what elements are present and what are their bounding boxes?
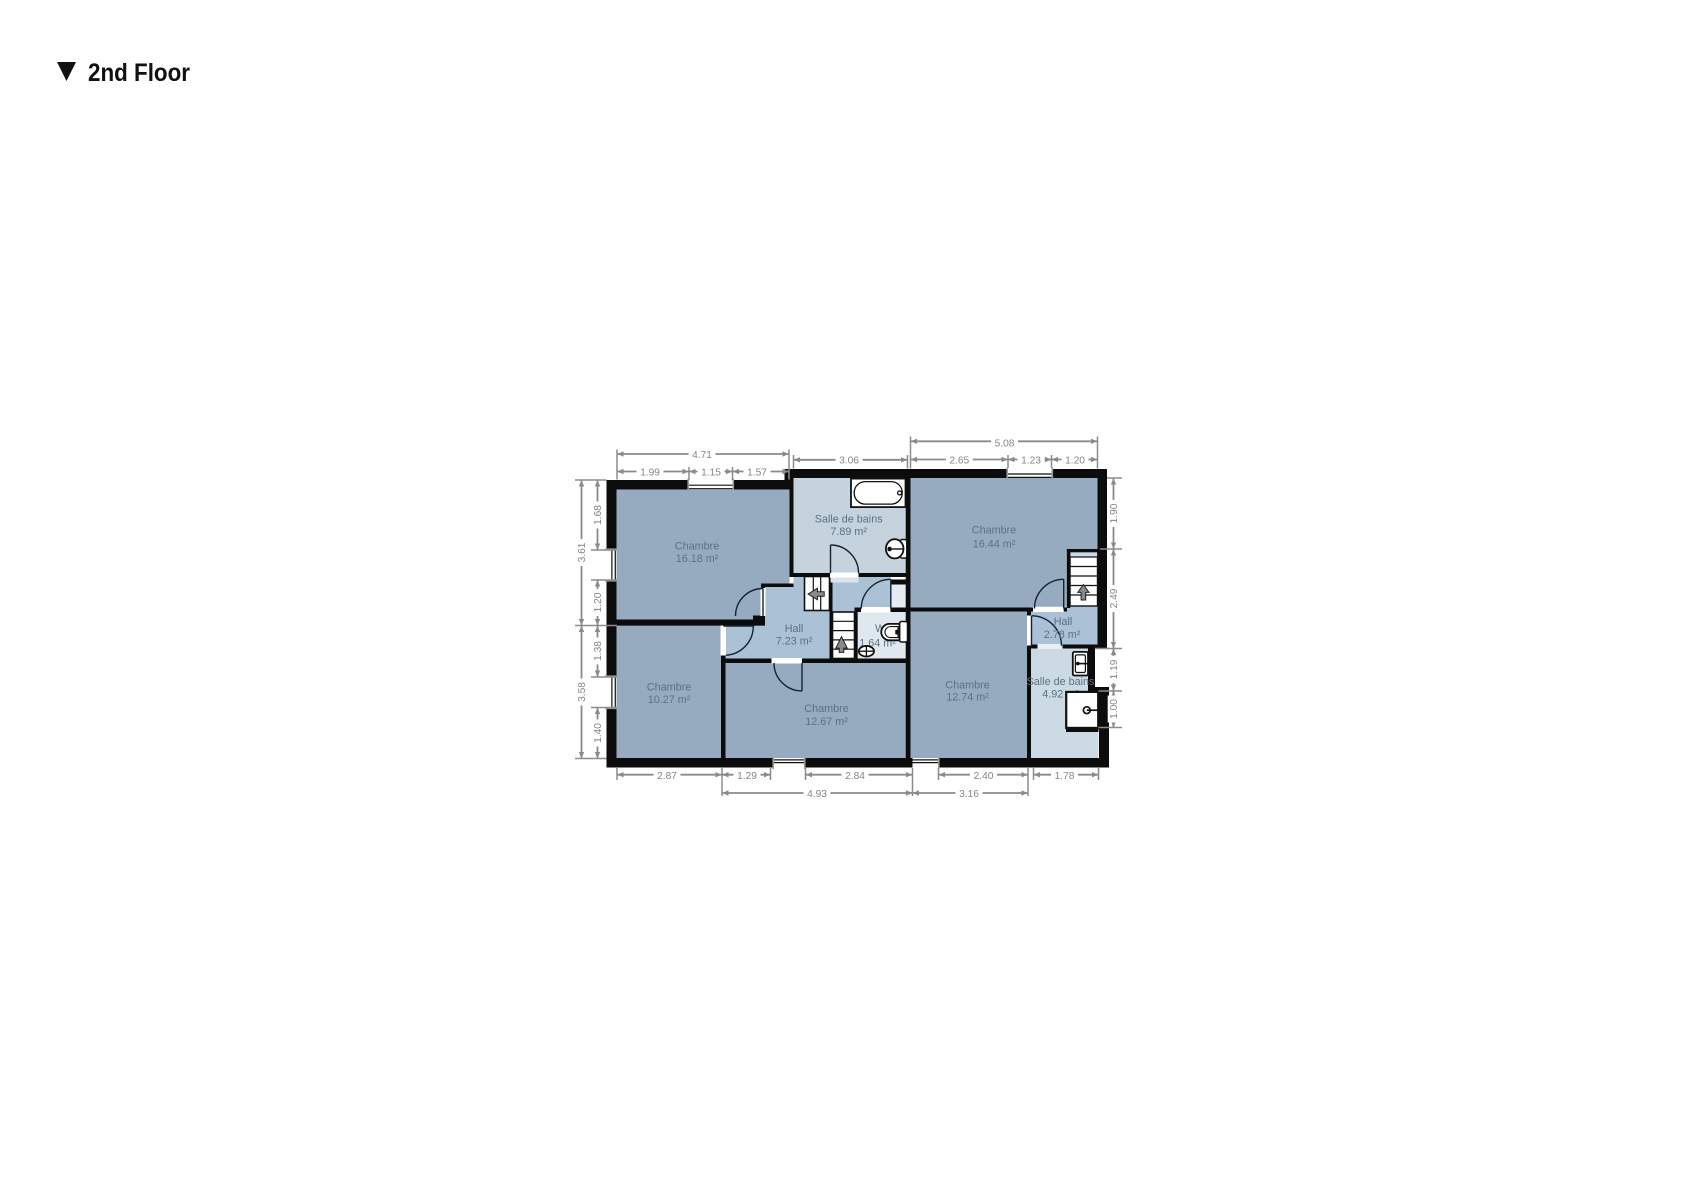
svg-text:1.19: 1.19: [1109, 659, 1120, 679]
svg-text:16.44 m²: 16.44 m²: [973, 539, 1016, 551]
svg-text:1.29: 1.29: [737, 771, 757, 782]
svg-text:7.23 m²: 7.23 m²: [776, 636, 813, 648]
svg-text:1.15: 1.15: [701, 468, 721, 479]
svg-text:1.40: 1.40: [593, 723, 604, 743]
svg-text:3.61: 3.61: [577, 542, 588, 562]
svg-text:Salle de bains: Salle de bains: [1027, 676, 1095, 688]
svg-text:12.67 m²: 12.67 m²: [805, 716, 848, 728]
svg-text:1.90: 1.90: [1109, 503, 1120, 523]
svg-text:3.16: 3.16: [959, 789, 979, 800]
svg-text:Chambre: Chambre: [647, 682, 691, 694]
svg-text:Hall: Hall: [1054, 616, 1073, 628]
svg-text:10.27 m²: 10.27 m²: [648, 694, 691, 706]
svg-text:2.84: 2.84: [845, 771, 865, 782]
svg-text:Chambre: Chambre: [945, 680, 989, 692]
svg-text:Hall: Hall: [785, 623, 804, 635]
svg-text:2nd Floor: 2nd Floor: [88, 59, 190, 87]
svg-text:1.23: 1.23: [1021, 456, 1041, 467]
svg-text:5.08: 5.08: [995, 439, 1015, 450]
svg-text:16.18 m²: 16.18 m²: [676, 553, 719, 565]
svg-text:1.57: 1.57: [747, 468, 767, 479]
svg-text:1.78: 1.78: [1055, 771, 1075, 782]
svg-text:1.38: 1.38: [593, 641, 604, 661]
svg-text:2.49: 2.49: [1109, 588, 1120, 608]
svg-text:4.93: 4.93: [807, 789, 827, 800]
svg-text:1.68: 1.68: [593, 505, 604, 525]
svg-text:2.40: 2.40: [974, 771, 994, 782]
svg-text:Salle de bains: Salle de bains: [815, 514, 883, 526]
svg-text:7.89 m²: 7.89 m²: [830, 526, 867, 538]
svg-text:2.65: 2.65: [949, 456, 969, 467]
svg-text:Chambre: Chambre: [972, 525, 1016, 537]
svg-text:Chambre: Chambre: [675, 541, 719, 553]
svg-text:1.99: 1.99: [640, 468, 660, 479]
svg-text:3.58: 3.58: [577, 682, 588, 702]
svg-text:2.78 m²: 2.78 m²: [1044, 629, 1081, 641]
svg-text:2.87: 2.87: [657, 771, 677, 782]
svg-text:12.74 m²: 12.74 m²: [946, 692, 989, 704]
svg-text:3.06: 3.06: [839, 456, 859, 467]
svg-text:1.20: 1.20: [593, 592, 604, 612]
svg-text:4.71: 4.71: [692, 450, 712, 461]
svg-text:1.00: 1.00: [1109, 699, 1120, 719]
svg-text:1.20: 1.20: [1065, 456, 1085, 467]
svg-text:Chambre: Chambre: [804, 703, 848, 715]
